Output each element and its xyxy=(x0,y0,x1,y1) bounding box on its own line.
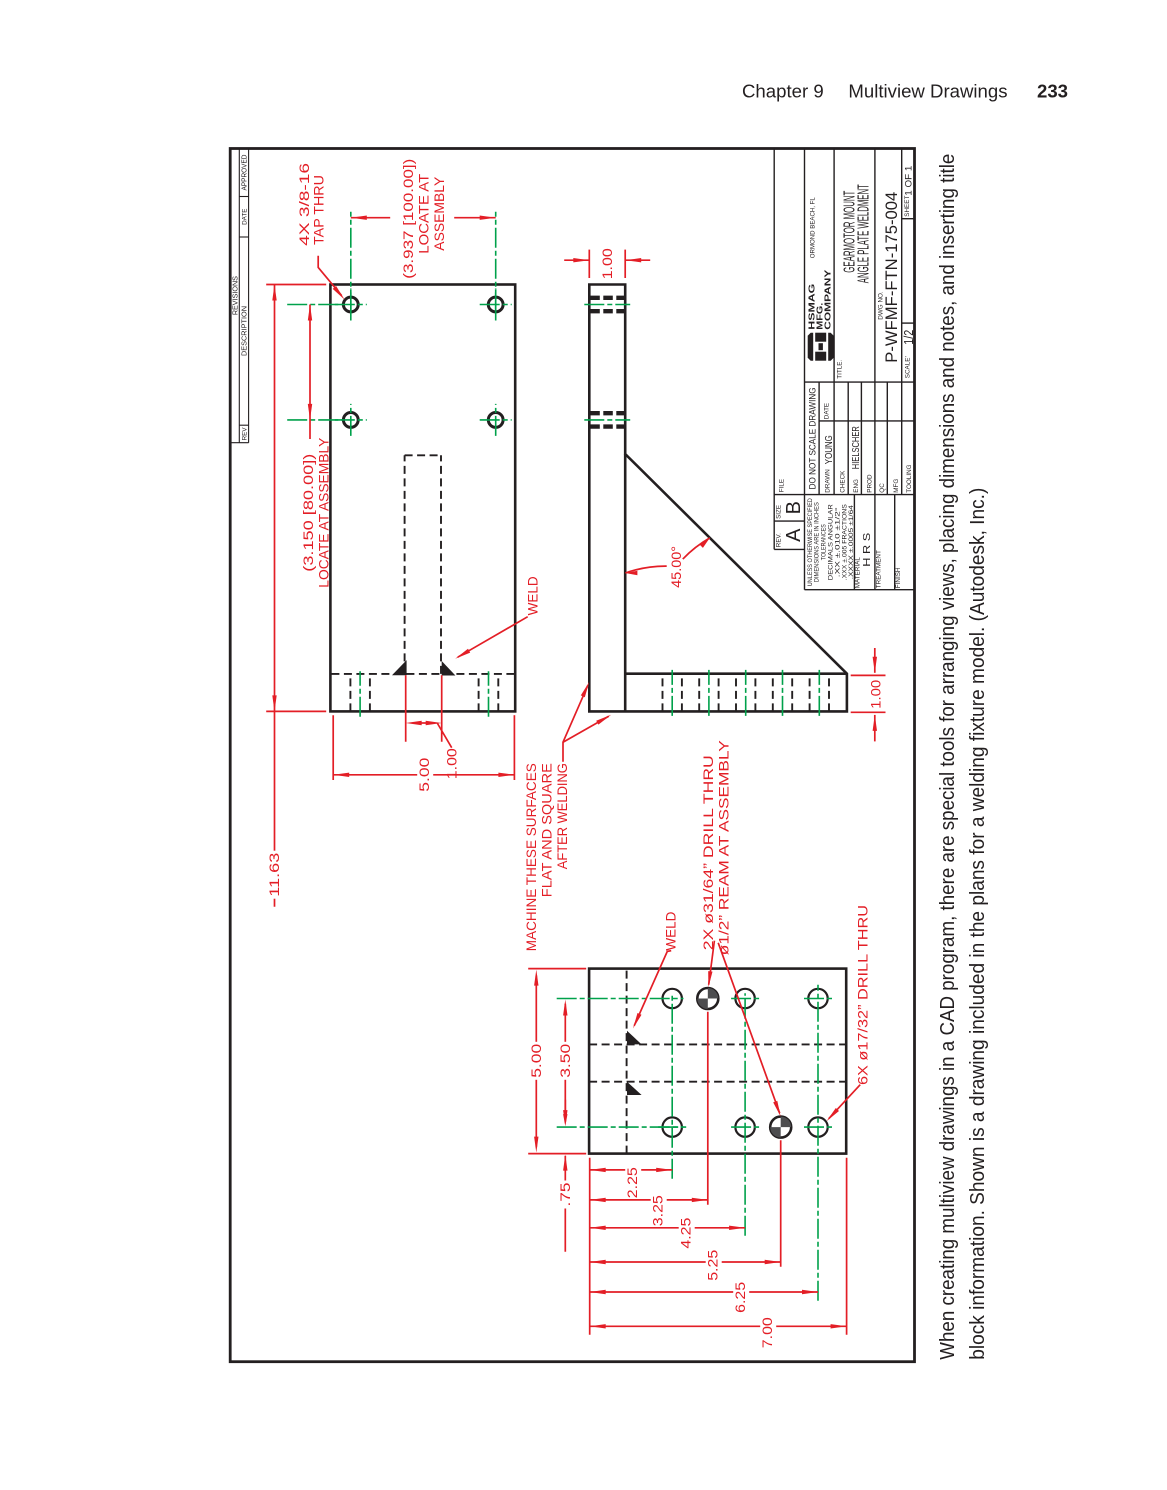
svg-text:ø1/2” REAM AT ASSEMBLY: ø1/2” REAM AT ASSEMBLY xyxy=(717,740,732,955)
svg-text:REV.: REV. xyxy=(776,533,783,547)
svg-text:ANGLE PLATE WELDMENT: ANGLE PLATE WELDMENT xyxy=(856,184,873,283)
svg-text:MFG: MFG xyxy=(893,479,900,493)
svg-text:FILE: FILE xyxy=(779,479,786,492)
svg-text:A: A xyxy=(783,528,805,542)
svg-text:2.25: 2.25 xyxy=(625,1167,640,1198)
svg-text:REVISIONS: REVISIONS xyxy=(230,276,239,315)
svg-text:Multiview Drawings: Multiview Drawings xyxy=(848,81,1007,102)
svg-text:(3.937 [100.00]): (3.937 [100.00]) xyxy=(401,159,416,279)
svg-text:DATE: DATE xyxy=(242,209,249,225)
svg-text:SIZE: SIZE xyxy=(776,505,783,519)
svg-text:(3.150 [80.00]): (3.150 [80.00]) xyxy=(301,454,316,572)
svg-text:3.25: 3.25 xyxy=(651,1195,666,1226)
svg-text:Chapter 9: Chapter 9 xyxy=(742,81,824,102)
svg-text:When creating multiview drawin: When creating multiview drawings in a CA… xyxy=(936,154,959,1360)
svg-text:2X ø31/64” DRILL THRU: 2X ø31/64” DRILL THRU xyxy=(701,755,716,950)
svg-text:SHEET: SHEET xyxy=(904,196,911,217)
svg-text:DO NOT SCALE DRAWING: DO NOT SCALE DRAWING xyxy=(808,387,818,489)
svg-text:5.00: 5.00 xyxy=(417,757,432,791)
svg-text:ENG: ENG xyxy=(853,479,860,493)
svg-text:233: 233 xyxy=(1037,81,1068,102)
svg-text:H R S: H R S xyxy=(862,532,873,566)
svg-text:HIELSCHER: HIELSCHER xyxy=(851,426,862,469)
svg-text:1 OF 1: 1 OF 1 xyxy=(904,166,914,196)
svg-text:PROD: PROD xyxy=(866,474,873,493)
svg-text:45.00°: 45.00° xyxy=(669,546,684,588)
svg-text:1.00: 1.00 xyxy=(869,679,884,708)
svg-text:LOCATE AT ASSEMBLY: LOCATE AT ASSEMBLY xyxy=(317,438,332,588)
svg-text:TAP THRU: TAP THRU xyxy=(312,175,327,245)
svg-text:P-WFMF-FTN-175-004: P-WFMF-FTN-175-004 xyxy=(882,192,901,363)
svg-text:1/2: 1/2 xyxy=(901,330,916,345)
svg-text:3.50: 3.50 xyxy=(558,1043,573,1077)
svg-text:4.25: 4.25 xyxy=(679,1217,694,1248)
svg-text:COMPANY: COMPANY xyxy=(824,269,833,330)
svg-text:block information. Shown is a: block information. Shown is a drawing in… xyxy=(966,488,989,1360)
svg-text:SCALE’: SCALE’ xyxy=(905,356,912,379)
svg-text:DATE: DATE xyxy=(824,403,831,419)
svg-text:DESCRIPTION: DESCRIPTION xyxy=(240,306,249,356)
svg-text:B: B xyxy=(783,501,805,514)
svg-text:WELD: WELD xyxy=(664,912,679,951)
svg-text:TITLE.: TITLE. xyxy=(837,360,844,379)
svg-text:7.00: 7.00 xyxy=(760,1317,775,1348)
svg-text:WELD: WELD xyxy=(526,576,541,615)
svg-text:.75: .75 xyxy=(558,1182,573,1206)
svg-text:5.00: 5.00 xyxy=(529,1043,544,1077)
svg-text:ORMOND BEACH, FL: ORMOND BEACH, FL xyxy=(810,197,817,258)
svg-text:CHECK: CHECK xyxy=(840,470,847,493)
svg-text:6.25: 6.25 xyxy=(733,1282,748,1313)
svg-text:MACHINE THESE SURFACES: MACHINE THESE SURFACES xyxy=(524,763,539,951)
svg-text:TREATMENT: TREATMENT xyxy=(876,550,883,588)
svg-text:.XX ±.010 ±1/2°: .XX ±.010 ±1/2° xyxy=(833,506,841,577)
svg-text:1.00: 1.00 xyxy=(600,248,615,279)
svg-text:YOUNG: YOUNG xyxy=(824,435,835,464)
svg-text:4X 3/8-16: 4X 3/8-16 xyxy=(297,162,312,245)
svg-text:REV: REV xyxy=(242,427,249,441)
svg-text:11.63: 11.63 xyxy=(267,852,282,896)
svg-text:ASSEMBLY: ASSEMBLY xyxy=(432,177,447,251)
svg-text:LOCATE AT: LOCATE AT xyxy=(417,173,432,254)
svg-text:MATERIAL: MATERIAL xyxy=(855,557,862,589)
svg-text:FINISH: FINISH xyxy=(895,567,902,588)
svg-text:APPROVED: APPROVED xyxy=(240,155,249,191)
svg-text:DRAWN: DRAWN xyxy=(825,469,832,493)
svg-text:TOOLING: TOOLING xyxy=(906,464,913,492)
svg-text:5.25: 5.25 xyxy=(706,1249,721,1280)
svg-text:1.00: 1.00 xyxy=(445,748,460,779)
svg-text:AFTER WELDING: AFTER WELDING xyxy=(555,763,570,869)
svg-text:FLAT AND SQUARE: FLAT AND SQUARE xyxy=(540,763,555,897)
svg-text:QC: QC xyxy=(879,483,886,493)
svg-text:6X ø17/32” DRILL THRU: 6X ø17/32” DRILL THRU xyxy=(856,905,871,1085)
